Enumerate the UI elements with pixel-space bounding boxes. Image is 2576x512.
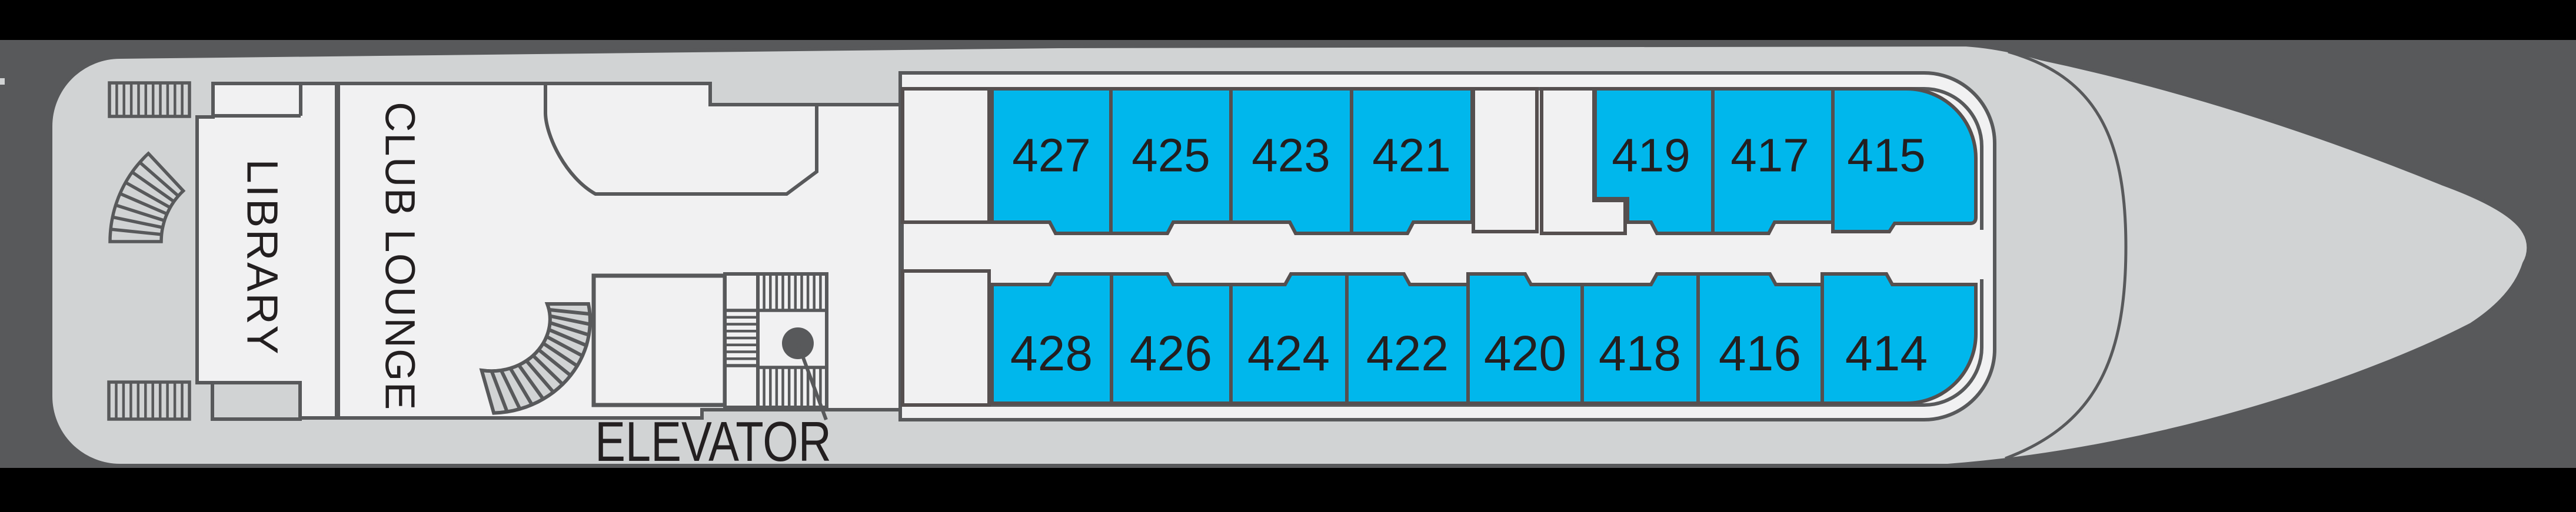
svg-text:418: 418 bbox=[1599, 326, 1681, 381]
svg-text:LIBRARY: LIBRARY bbox=[238, 159, 287, 356]
svg-text:425: 425 bbox=[1131, 129, 1210, 182]
svg-text:414: 414 bbox=[1845, 326, 1928, 381]
svg-text:CLUB LOUNGE: CLUB LOUNGE bbox=[377, 102, 423, 410]
svg-text:416: 416 bbox=[1719, 326, 1801, 381]
svg-text:420: 420 bbox=[1484, 326, 1566, 381]
svg-text:421: 421 bbox=[1372, 129, 1450, 182]
svg-text:422: 422 bbox=[1366, 326, 1449, 381]
svg-text:427: 427 bbox=[1012, 129, 1090, 182]
svg-text:419: 419 bbox=[1612, 129, 1690, 182]
svg-text:426: 426 bbox=[1130, 326, 1212, 381]
svg-text:417: 417 bbox=[1730, 129, 1809, 182]
svg-text:424: 424 bbox=[1247, 326, 1330, 381]
svg-text:423: 423 bbox=[1252, 129, 1330, 182]
svg-text:428: 428 bbox=[1010, 326, 1093, 381]
svg-text:ELEVATOR: ELEVATOR bbox=[595, 410, 831, 473]
svg-text:415: 415 bbox=[1847, 129, 1925, 182]
